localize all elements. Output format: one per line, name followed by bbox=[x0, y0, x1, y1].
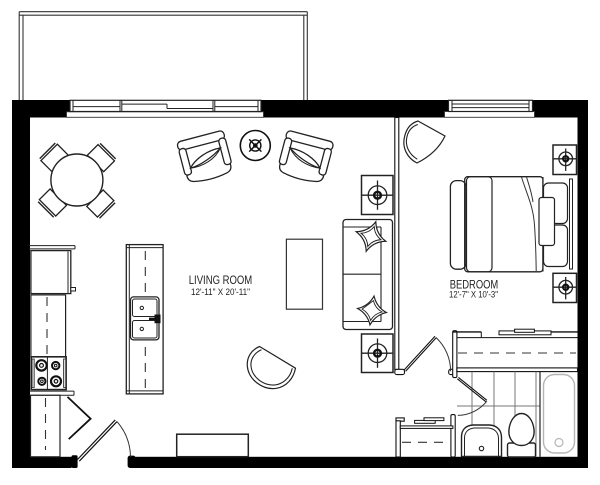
svg-text:12'-11" X 20'-11": 12'-11" X 20'-11" bbox=[191, 287, 250, 297]
svg-text:LIVING ROOM: LIVING ROOM bbox=[189, 275, 253, 287]
svg-text:12'-7" X 10'-3": 12'-7" X 10'-3" bbox=[449, 290, 498, 300]
